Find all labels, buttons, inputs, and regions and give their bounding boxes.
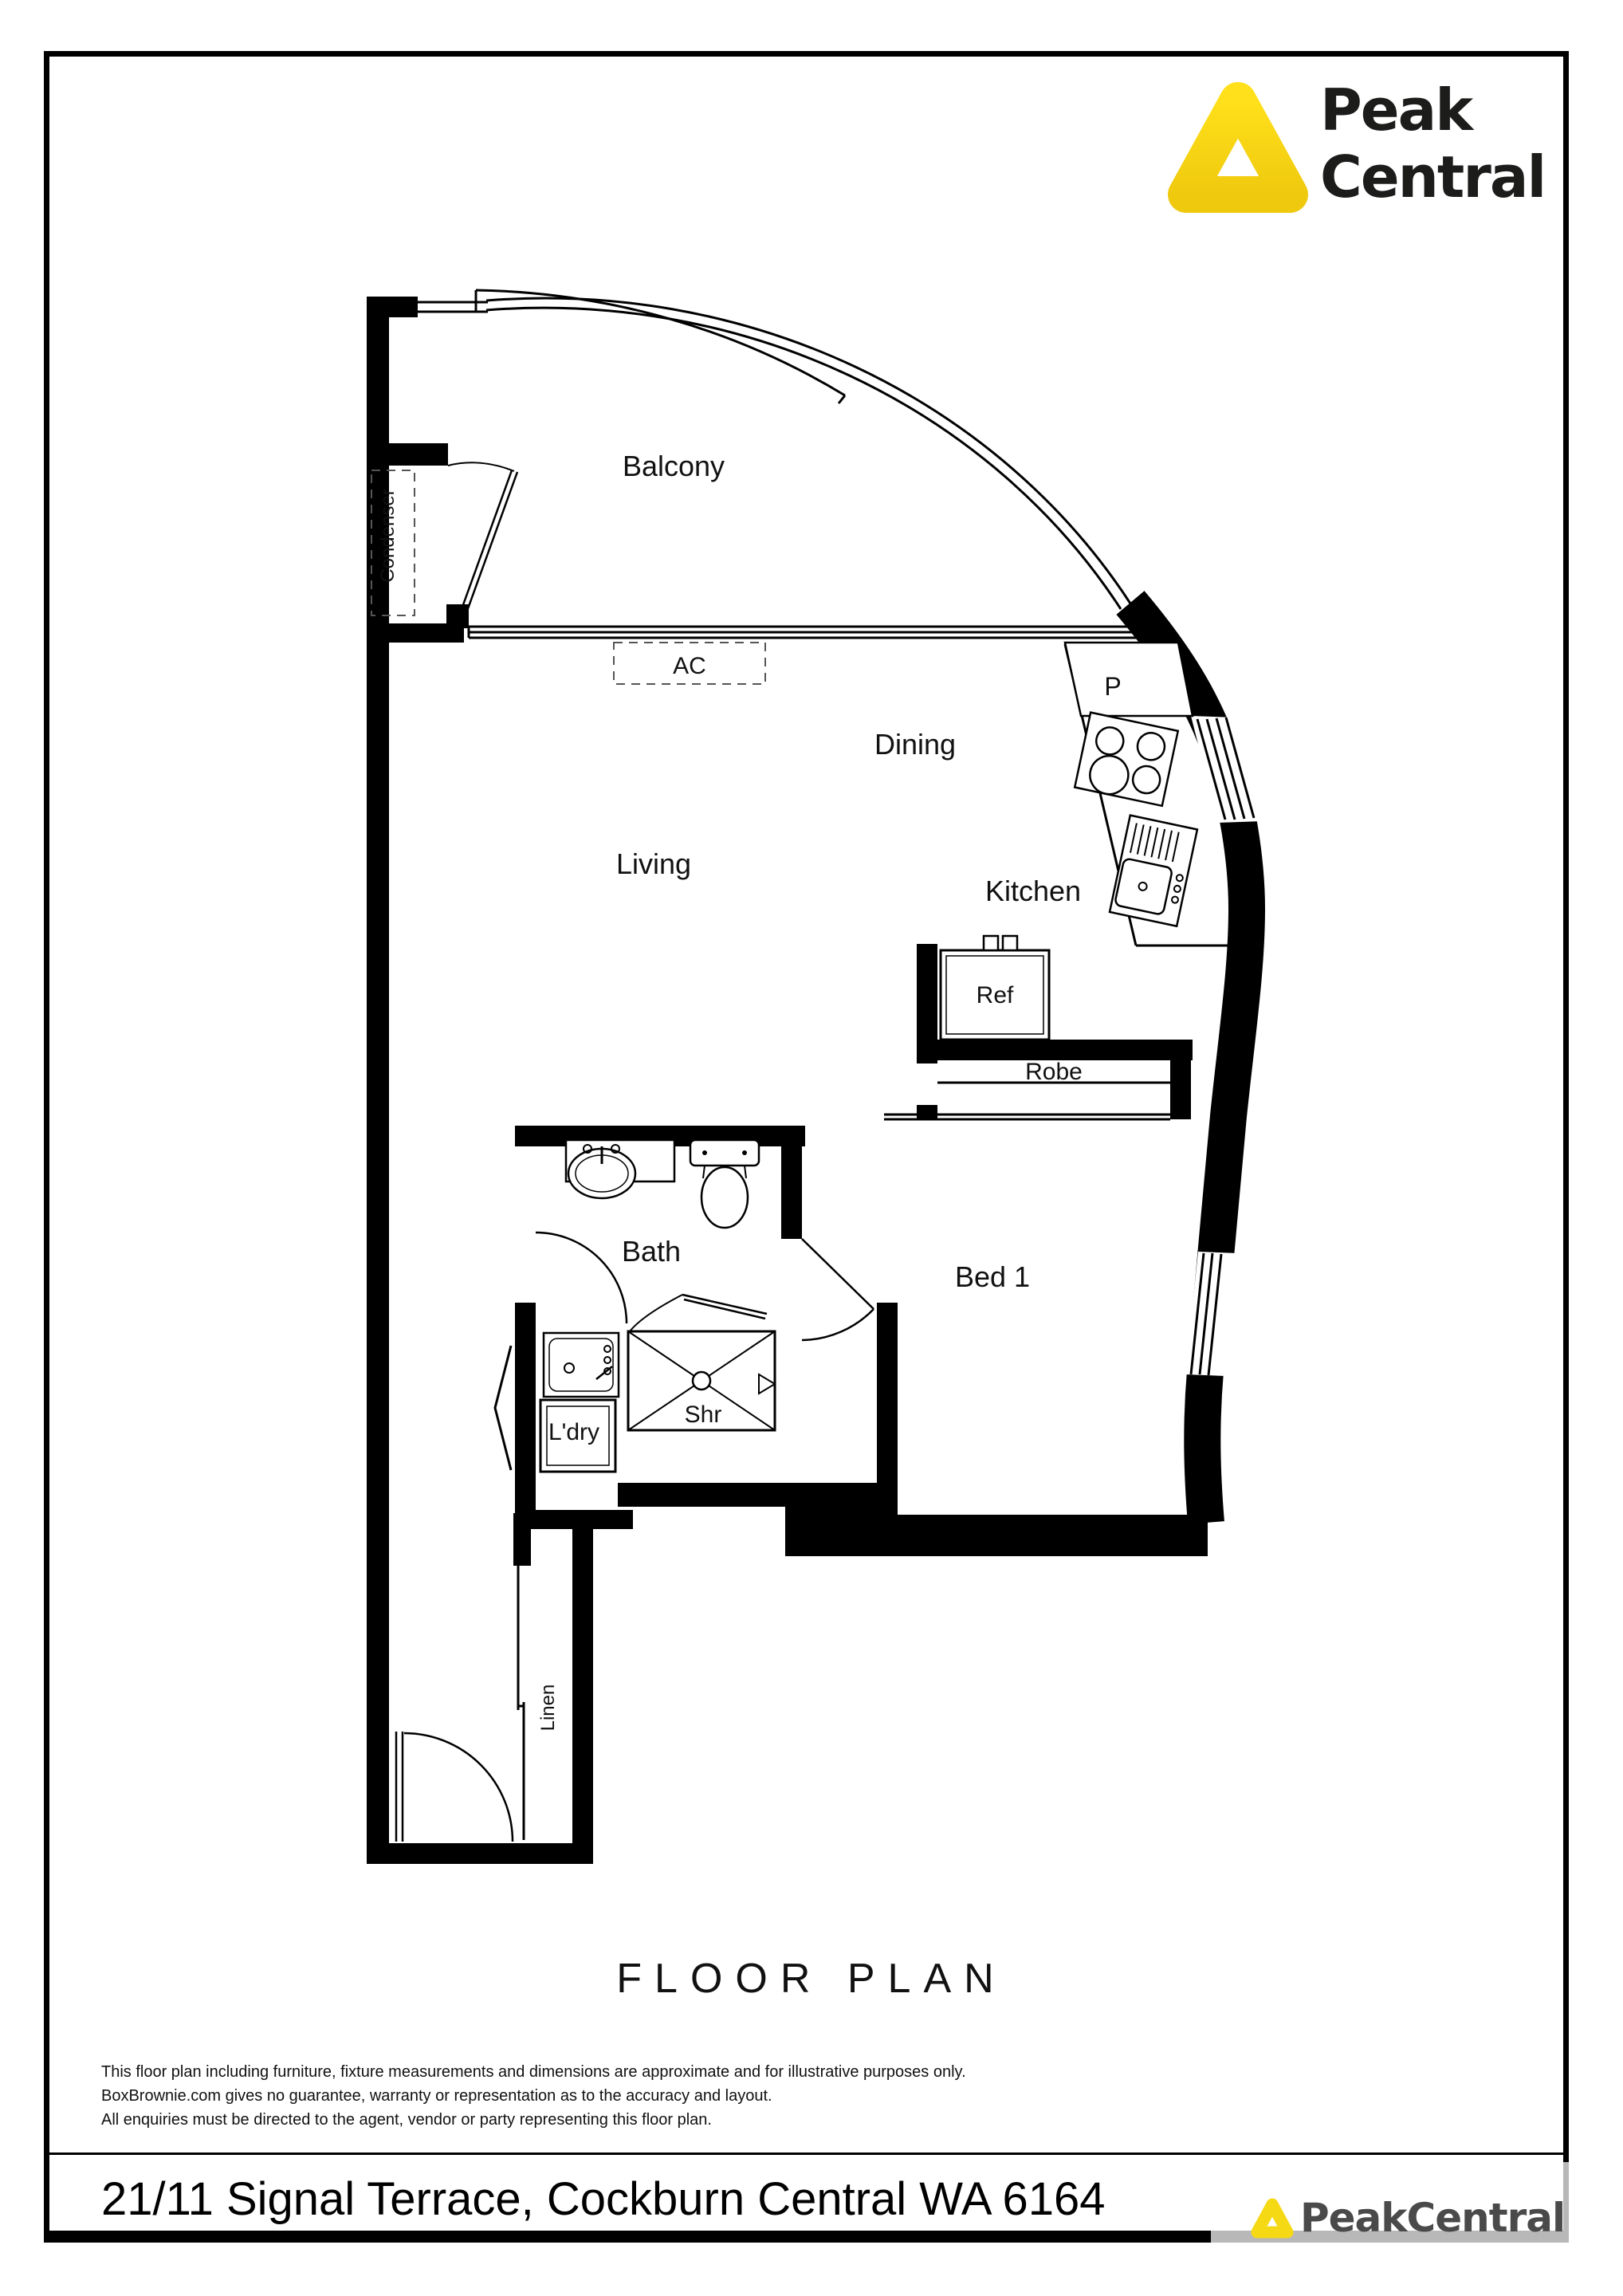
disclaimer-line-1: This floor plan including furniture, fix… — [101, 2060, 966, 2084]
label-laundry: L'dry — [548, 1419, 599, 1445]
balcony-railing — [415, 290, 1130, 609]
watermark-triangle-icon — [1248, 2193, 1297, 2241]
toilet-icon — [690, 1140, 759, 1228]
kitchen-window — [1191, 716, 1263, 823]
floor-plan-drawing: Balcony AC Condenser Dining Living Kitch… — [0, 0, 1623, 2296]
stove-icon — [1075, 713, 1178, 806]
vanity-sink-icon — [566, 1140, 674, 1198]
label-ac: AC — [673, 653, 706, 679]
label-living: Living — [616, 847, 691, 880]
bed1-window — [1185, 1252, 1238, 1376]
label-bath: Bath — [622, 1235, 681, 1268]
disclaimer-line-3: All enquiries must be directed to the ag… — [101, 2108, 966, 2132]
pantry-cabinet — [1065, 643, 1193, 716]
label-condenser: Condenser — [377, 489, 399, 582]
label-pantry: P — [1104, 672, 1121, 701]
laundry-tub-icon — [544, 1333, 619, 1397]
label-fridge: Ref — [977, 982, 1014, 1008]
floor-plan-page: Peak Central — [0, 0, 1623, 2296]
kitchen-sink-icon — [1110, 816, 1197, 926]
label-linen: Linen — [537, 1685, 559, 1732]
disclaimer: This floor plan including furniture, fix… — [101, 2060, 966, 2132]
peakcentral-watermark: PeakCentral — [1211, 2162, 1574, 2243]
label-dining: Dining — [874, 728, 956, 761]
label-robe: Robe — [1025, 1059, 1083, 1085]
label-balcony: Balcony — [623, 450, 725, 482]
label-bed1: Bed 1 — [955, 1260, 1030, 1293]
label-kitchen: Kitchen — [985, 875, 1081, 907]
watermark-wordmark: PeakCentral — [1300, 2195, 1565, 2241]
floor-plan-title: FLOOR PLAN — [0, 1955, 1623, 2003]
property-address: 21/11 Signal Terrace, Cockburn Central W… — [101, 2172, 1106, 2226]
label-shower: Shr — [685, 1402, 722, 1428]
disclaimer-line-2: BoxBrownie.com gives no guarantee, warra… — [101, 2084, 966, 2108]
